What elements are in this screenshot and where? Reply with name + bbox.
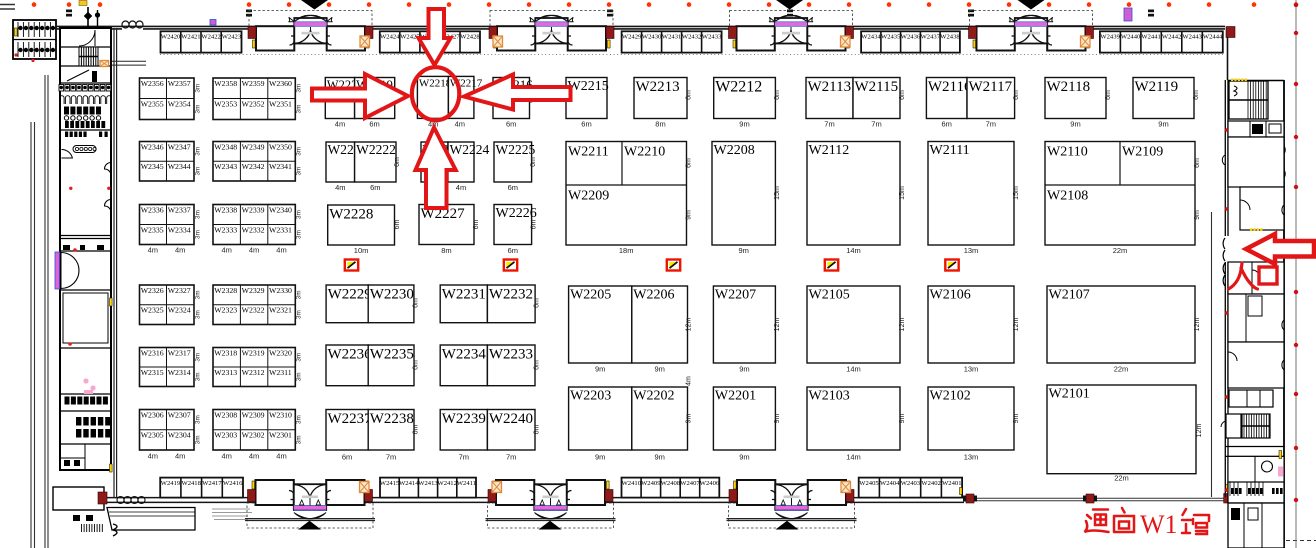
svg-text:W2312: W2312 [242,368,265,377]
svg-text:W2432: W2432 [682,34,701,41]
svg-text:6m: 6m [686,158,693,168]
svg-text:W2236: W2236 [328,346,373,362]
svg-text:W2118: W2118 [1047,79,1091,95]
svg-text:3m: 3m [296,105,303,114]
svg-text:W2353: W2353 [214,100,237,109]
svg-text:W2327: W2327 [168,286,191,295]
svg-text:9m: 9m [739,453,749,462]
svg-text:W2347: W2347 [168,143,191,152]
svg-text:3m: 3m [195,310,202,319]
svg-text:7m: 7m [871,120,881,129]
svg-text:W2115: W2115 [855,79,899,95]
svg-text:6m: 6m [1013,90,1020,100]
svg-text:6m: 6m [1105,90,1112,100]
svg-text:6m: 6m [899,90,906,100]
svg-text:W2303: W2303 [214,431,237,440]
svg-text:4m: 4m [335,183,345,192]
svg-text:4m: 4m [276,452,286,461]
svg-text:W2413: W2413 [418,480,438,487]
svg-text:3m: 3m [195,147,202,156]
svg-text:W2324: W2324 [168,306,191,315]
svg-text:W2417: W2417 [202,480,222,487]
svg-text:W2103: W2103 [809,389,850,404]
svg-text:W2315: W2315 [141,368,164,377]
svg-text:W2234: W2234 [442,346,487,362]
svg-text:3m: 3m [296,84,303,93]
svg-text:W2226: W2226 [496,206,537,221]
svg-text:W2433: W2433 [702,34,722,41]
svg-text:W2337: W2337 [168,206,191,215]
svg-text:3m: 3m [296,230,303,239]
svg-text:9m: 9m [774,413,781,423]
svg-text:7m: 7m [386,453,396,462]
svg-text:6m: 6m [342,453,352,462]
svg-text:W2437: W2437 [921,34,941,41]
svg-text:W2328: W2328 [214,286,237,295]
svg-text:14m: 14m [846,365,861,374]
svg-text:14m: 14m [846,453,861,462]
svg-text:6m: 6m [534,360,541,370]
svg-text:W2304: W2304 [168,431,191,440]
svg-text:W2224: W2224 [450,142,490,157]
svg-text:W2359: W2359 [242,79,265,88]
svg-text:6m: 6m [508,246,518,255]
svg-text:W2346: W2346 [141,143,164,152]
svg-text:12m: 12m [899,318,906,332]
svg-text:W2429: W2429 [622,34,642,41]
svg-text:12m: 12m [1013,318,1020,332]
svg-text:6m: 6m [534,424,541,434]
svg-text:3m: 3m [296,372,303,381]
svg-text:W2308: W2308 [214,411,237,420]
svg-text:W2310: W2310 [269,411,292,420]
svg-text:W2321: W2321 [269,306,292,315]
svg-text:9m: 9m [595,453,605,462]
svg-text:W2406: W2406 [700,480,720,487]
svg-text:W2334: W2334 [168,226,191,235]
svg-text:W2401: W2401 [942,480,961,487]
svg-text:W2412: W2412 [437,480,456,487]
svg-text:W2207: W2207 [715,288,756,303]
svg-text:W2302: W2302 [242,431,265,440]
svg-text:4m: 4m [456,183,466,192]
svg-text:W2306: W2306 [141,411,164,420]
svg-text:W2301: W2301 [269,431,292,440]
svg-text:W2305: W2305 [141,431,164,440]
svg-text:3m: 3m [296,435,303,444]
svg-text:4m: 4m [175,246,185,255]
svg-text:4m: 4m [249,246,259,255]
svg-text:15m: 15m [1013,186,1020,200]
svg-text:3m: 3m [195,84,202,93]
svg-text:6m: 6m [1194,158,1201,168]
svg-text:4m: 4m [221,452,231,461]
svg-text:W2116: W2116 [928,79,972,95]
svg-text:4m: 4m [249,452,259,461]
svg-text:W2314: W2314 [168,368,191,377]
svg-text:3m: 3m [195,230,202,239]
svg-text:12m: 12m [686,318,693,332]
svg-text:13m: 13m [964,453,979,462]
svg-text:22m: 22m [1114,474,1129,483]
svg-text:6m: 6m [506,120,516,129]
svg-text:W2356: W2356 [141,79,164,88]
svg-text:W2434: W2434 [861,34,881,41]
svg-text:W2355: W2355 [141,100,164,109]
svg-text:W2341: W2341 [269,162,292,171]
svg-text:W2414: W2414 [399,480,419,487]
svg-text:18m: 18m [619,246,634,255]
svg-text:W2418: W2418 [181,480,201,487]
svg-text:W2405: W2405 [859,480,879,487]
svg-text:W2333: W2333 [214,226,237,235]
svg-text:W2407: W2407 [680,480,700,487]
svg-text:W2218: W2218 [419,77,452,89]
svg-text:W2201: W2201 [715,389,756,404]
svg-text:W2438: W2438 [940,34,960,41]
svg-text:7m: 7m [824,120,834,129]
svg-text:W2113: W2113 [808,79,852,95]
svg-text:6m: 6m [508,183,518,192]
svg-text:W2322: W2322 [242,306,265,315]
svg-text:W2233: W2233 [489,346,533,362]
svg-text:W2419: W2419 [161,480,181,487]
svg-text:3m: 3m [296,310,303,319]
svg-text:9m: 9m [1070,120,1080,129]
svg-text:W2101: W2101 [1049,387,1090,402]
svg-text:W2231: W2231 [442,286,486,302]
svg-text:9m: 9m [739,365,749,374]
svg-text:3m: 3m [296,290,303,299]
svg-text:9m: 9m [1194,210,1201,220]
svg-text:7m: 7m [986,120,996,129]
svg-text:4m: 4m [148,452,158,461]
svg-text:W2403: W2403 [901,480,921,487]
svg-text:W2108: W2108 [1047,189,1088,204]
svg-text:3m: 3m [296,167,303,176]
svg-text:W2439: W2439 [1100,34,1120,41]
svg-text:3m: 3m [195,372,202,381]
svg-text:W2416: W2416 [223,480,243,487]
svg-text:6m: 6m [394,219,401,229]
svg-text:W2110: W2110 [1047,145,1088,160]
svg-text:8m: 8m [655,120,665,129]
svg-text:W2441: W2441 [1141,34,1160,41]
svg-text:13m: 13m [964,246,979,255]
svg-text:W2443: W2443 [1182,34,1202,41]
svg-text:W2105: W2105 [809,288,850,303]
svg-text:W2442: W2442 [1162,34,1181,41]
svg-text:W2313: W2313 [214,368,237,377]
svg-text:W2352: W2352 [242,100,265,109]
svg-text:W2420: W2420 [161,34,181,41]
svg-text:3m: 3m [296,147,303,156]
svg-text:W2351: W2351 [269,100,292,109]
svg-text:9m: 9m [739,120,749,129]
svg-text:W2208: W2208 [714,143,755,158]
svg-text:3m: 3m [296,353,303,362]
svg-text:6m: 6m [473,219,480,229]
svg-text:W2415: W2415 [380,480,400,487]
svg-text:W2117: W2117 [969,79,1013,95]
svg-text:W2436: W2436 [901,34,921,41]
svg-text:6m: 6m [774,90,781,100]
svg-text:W2345: W2345 [141,162,164,171]
svg-text:4m: 4m [148,246,158,255]
svg-text:10m: 10m [354,246,369,255]
svg-text:12m: 12m [1194,318,1201,332]
svg-text:7m: 7m [459,453,469,462]
svg-text:3m: 3m [296,415,303,424]
svg-text:W2402: W2402 [921,480,940,487]
svg-text:W2202: W2202 [633,389,674,404]
svg-text:W2211: W2211 [568,145,609,160]
svg-text:9m: 9m [654,365,664,374]
svg-text:W2316: W2316 [141,349,164,358]
svg-text:W2423: W2423 [222,34,242,41]
svg-text:W2239: W2239 [442,411,486,427]
svg-text:W2422: W2422 [201,34,220,41]
svg-text:W2319: W2319 [242,349,265,358]
svg-text:W2111: W2111 [930,143,970,158]
svg-text:W2119: W2119 [1135,79,1179,95]
svg-text:W2209: W2209 [568,189,609,204]
svg-text:4m: 4m [455,120,465,129]
svg-text:W2210: W2210 [624,145,665,160]
svg-text:W2357: W2357 [168,79,191,88]
svg-text:W2212: W2212 [715,79,762,96]
svg-text:13m: 13m [964,365,979,374]
svg-text:3m: 3m [195,353,202,362]
svg-text:W2428: W2428 [460,34,480,41]
svg-text:W2228: W2228 [329,206,373,222]
svg-text:6m: 6m [413,424,420,434]
svg-text:3m: 3m [195,105,202,114]
svg-text:W2404: W2404 [880,480,900,487]
svg-text:4m: 4m [221,246,231,255]
svg-text:9m: 9m [1158,120,1168,129]
svg-text:W2430: W2430 [642,34,662,41]
svg-text:14m: 14m [846,246,861,255]
svg-text:6m: 6m [413,298,420,308]
svg-text:3m: 3m [195,415,202,424]
svg-text:W2440: W2440 [1121,34,1141,41]
svg-text:W2350: W2350 [269,143,292,152]
svg-text:3m: 3m [195,435,202,444]
svg-text:W2232: W2232 [489,286,533,302]
svg-text:4m: 4m [686,376,693,386]
svg-text:W2410: W2410 [622,480,642,487]
svg-text:12m: 12m [774,318,781,332]
svg-text:6m: 6m [394,157,401,167]
svg-text:W2411: W2411 [457,480,476,487]
svg-text:W2112: W2112 [809,143,850,158]
svg-text:W2230: W2230 [370,286,414,302]
svg-text:W2358: W2358 [214,79,237,88]
svg-text:W2238: W2238 [370,411,414,427]
svg-text:15m: 15m [899,186,906,200]
svg-text:W2240: W2240 [489,411,533,427]
svg-text:W2225: W2225 [496,142,536,157]
svg-text:W2235: W2235 [370,346,414,362]
svg-text:W2421: W2421 [181,34,200,41]
svg-text:3m: 3m [195,290,202,299]
svg-text:9m: 9m [686,210,693,220]
svg-text:W2349: W2349 [242,143,265,152]
svg-text:6m: 6m [941,120,951,129]
svg-text:W2360: W2360 [269,79,292,88]
svg-text:W2332: W2332 [242,226,265,235]
svg-text:W2444: W2444 [1203,34,1223,41]
svg-text:W2203: W2203 [570,389,611,404]
svg-text:9m: 9m [738,246,748,255]
svg-text:4m: 4m [276,246,286,255]
svg-text:22m: 22m [1113,246,1128,255]
svg-text:W2222: W2222 [356,142,396,157]
svg-text:W2344: W2344 [168,162,191,171]
svg-text:W2317: W2317 [168,349,191,358]
svg-text:W2325: W2325 [141,306,164,315]
svg-text:6m: 6m [530,157,537,167]
svg-text:W2107: W2107 [1049,288,1090,303]
svg-text:W2408: W2408 [661,480,681,487]
svg-text:6m: 6m [534,298,541,308]
svg-text:W2342: W2342 [242,162,265,171]
svg-text:W2326: W2326 [141,286,164,295]
svg-text:W2338: W2338 [214,206,237,215]
svg-text:W2307: W2307 [168,411,191,420]
svg-text:W2229: W2229 [328,286,372,302]
svg-text:6m: 6m [1193,90,1200,100]
svg-text:6m: 6m [369,120,379,129]
svg-text:W2102: W2102 [930,389,971,404]
svg-text:W2320: W2320 [269,349,292,358]
svg-text:3m: 3m [195,167,202,176]
svg-text:W2348: W2348 [214,143,237,152]
svg-text:W2329: W2329 [242,286,265,295]
svg-text:15m: 15m [774,186,781,200]
svg-text:W2343: W2343 [214,162,237,171]
svg-text:W2237: W2237 [328,411,373,427]
svg-text:W2330: W2330 [269,286,292,295]
svg-text:W2206: W2206 [633,288,674,303]
svg-text:W2431: W2431 [662,34,681,41]
svg-text:3m: 3m [195,210,202,219]
svg-text:7m: 7m [506,453,516,462]
svg-text:22m: 22m [1114,365,1129,374]
svg-text:4m: 4m [175,452,185,461]
svg-text:3m: 3m [296,210,303,219]
svg-text:W2336: W2336 [141,206,164,215]
svg-text:8m: 8m [441,246,451,255]
svg-text:6m: 6m [413,360,420,370]
svg-text:6m: 6m [581,120,591,129]
svg-text:6m: 6m [531,219,538,229]
svg-text:W2311: W2311 [269,368,292,377]
svg-text:W2409: W2409 [641,480,661,487]
svg-text:W2205: W2205 [570,288,611,303]
svg-text:W2106: W2106 [930,288,971,303]
svg-text:12m: 12m [1196,424,1203,438]
svg-text:9m: 9m [686,413,693,423]
svg-text:W2309: W2309 [242,411,265,420]
svg-text:W2354: W2354 [168,100,191,109]
svg-text:6m: 6m [686,90,693,100]
svg-text:W2323: W2323 [214,306,237,315]
svg-text:W2318: W2318 [214,349,237,358]
svg-text:W2339: W2339 [242,206,265,215]
svg-text:W2340: W2340 [269,206,292,215]
svg-text:9m: 9m [654,453,664,462]
svg-text:W2335: W2335 [141,226,164,235]
svg-text:9m: 9m [595,365,605,374]
svg-text:6m: 6m [370,183,380,192]
svg-text:9m: 9m [1013,413,1020,423]
svg-text:W2215: W2215 [568,79,609,94]
svg-text:W2331: W2331 [269,226,292,235]
svg-text:W1: W1 [1140,510,1178,539]
svg-text:W2424: W2424 [380,34,400,41]
svg-text:4m: 4m [335,120,345,129]
svg-text:9m: 9m [899,413,906,423]
svg-text:W2435: W2435 [881,34,901,41]
svg-text:W2213: W2213 [636,79,680,95]
svg-text:W2109: W2109 [1122,145,1163,160]
